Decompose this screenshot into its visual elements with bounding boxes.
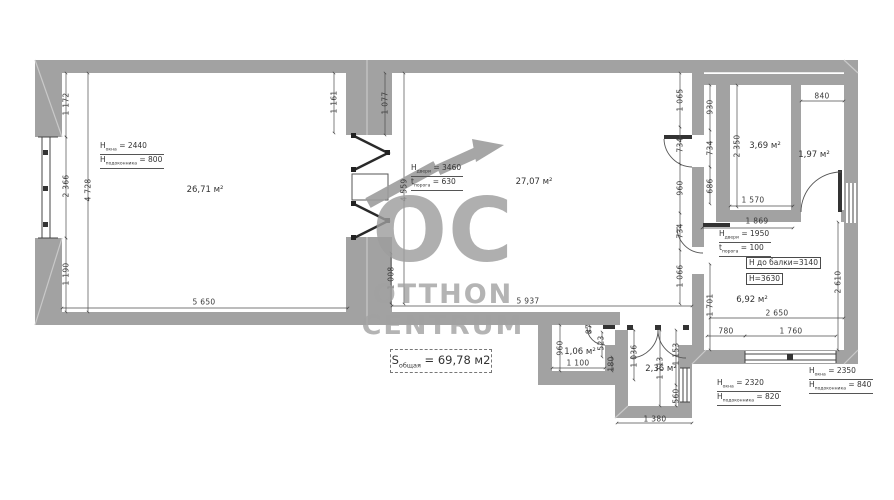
height-note-line: Hокна = 2440	[100, 141, 164, 155]
room-area-label: 26,71 м²	[187, 185, 224, 195]
dimension-label: 1 760	[780, 327, 803, 336]
height-note: Hдвери = 3460tпорога = 630	[411, 163, 463, 191]
dimension-label: 734	[676, 223, 685, 238]
dimension-label: 1 066	[676, 265, 685, 288]
dimension-label: 87	[585, 324, 594, 334]
total-area-box: Sобщая = 69,78 м2	[390, 349, 492, 373]
room-area-label: 27,07 м²	[516, 177, 553, 187]
dimension-label: 1 190	[62, 263, 71, 286]
room-area-label: 6,92 м²	[736, 295, 767, 305]
dimension-label: 840	[814, 92, 829, 101]
dimension-label: 1 172	[62, 93, 71, 116]
height-note-line: Hподоконника = 840	[809, 380, 873, 394]
dimension-label: 180	[607, 356, 616, 371]
dimension-label: 1 380	[644, 415, 667, 424]
height-note: Hокна = 2440Hподоконника = 800	[100, 141, 164, 169]
dimension-label: 734	[706, 140, 715, 155]
ceiling-height-note: Н до балки=3140	[746, 257, 821, 269]
room-area-label: 1,97 м²	[798, 150, 829, 160]
dimension-label: 2 350	[733, 135, 742, 158]
total-area-text: Sобщая = 69,78 м2	[392, 353, 491, 369]
dimension-label: 4 728	[84, 179, 93, 202]
height-note-line: Hподоконника = 820	[717, 392, 781, 406]
dimension-label: 2 610	[834, 271, 843, 294]
dimension-label: 686	[706, 178, 715, 193]
dimension-label: 5 937	[517, 297, 540, 306]
plan-labels: 1 1722 3661 1904 7281 1615 6501 0774 559…	[0, 0, 894, 500]
height-note: Hокна = 2350Hподоконника = 840	[809, 366, 873, 394]
dimension-label: 4 559	[400, 179, 409, 202]
dimension-label: 1 036	[630, 345, 639, 368]
dimension-label: 930	[706, 99, 715, 114]
dimension-label: 5 650	[193, 298, 216, 307]
room-area-label: 3,69 м²	[749, 141, 780, 151]
ceiling-height-note: H=3630	[746, 273, 783, 285]
room-area-label: 2,36 м²	[645, 364, 676, 374]
dimension-label: 734	[676, 137, 685, 152]
dimension-label: 2 366	[62, 175, 71, 198]
dimension-label: 960	[676, 180, 685, 195]
height-note-line: tпорога = 630	[411, 177, 463, 191]
dimension-label: 780	[718, 327, 733, 336]
dimension-label: 960	[556, 340, 565, 355]
dimension-label: 1 008	[387, 267, 396, 290]
dimension-label: 1 065	[676, 89, 685, 112]
height-note-line: Hдвери = 1950	[719, 229, 771, 243]
height-note-line: Hдвери = 3460	[411, 163, 463, 177]
dimension-label: 1 077	[381, 92, 390, 115]
dimension-label: 1 701	[706, 294, 715, 317]
dimension-label: 1 153	[672, 343, 681, 366]
height-note-line: Hподоконника = 800	[100, 155, 164, 169]
height-note: Hокна = 2320Hподоконника = 820	[717, 378, 781, 406]
floor-plan: 1 1722 3661 1904 7281 1615 6501 0774 559…	[0, 0, 894, 500]
height-note-line: Hокна = 2350	[809, 366, 873, 380]
dimension-label: 1 161	[330, 91, 339, 114]
dimension-label: 1 570	[742, 196, 765, 205]
dimension-label: 523	[597, 335, 606, 350]
dimension-label: 1 869	[746, 217, 769, 226]
dimension-label: 560	[672, 388, 681, 403]
height-note-line: Hокна = 2320	[717, 378, 781, 392]
height-note-line: tпорога = 100	[719, 243, 771, 257]
dimension-label: 1 100	[567, 359, 590, 368]
room-area-label: 1,06 м²	[564, 347, 595, 357]
dimension-label: 2 650	[766, 309, 789, 318]
height-note: Hдвери = 1950tпорога = 100	[719, 229, 771, 257]
